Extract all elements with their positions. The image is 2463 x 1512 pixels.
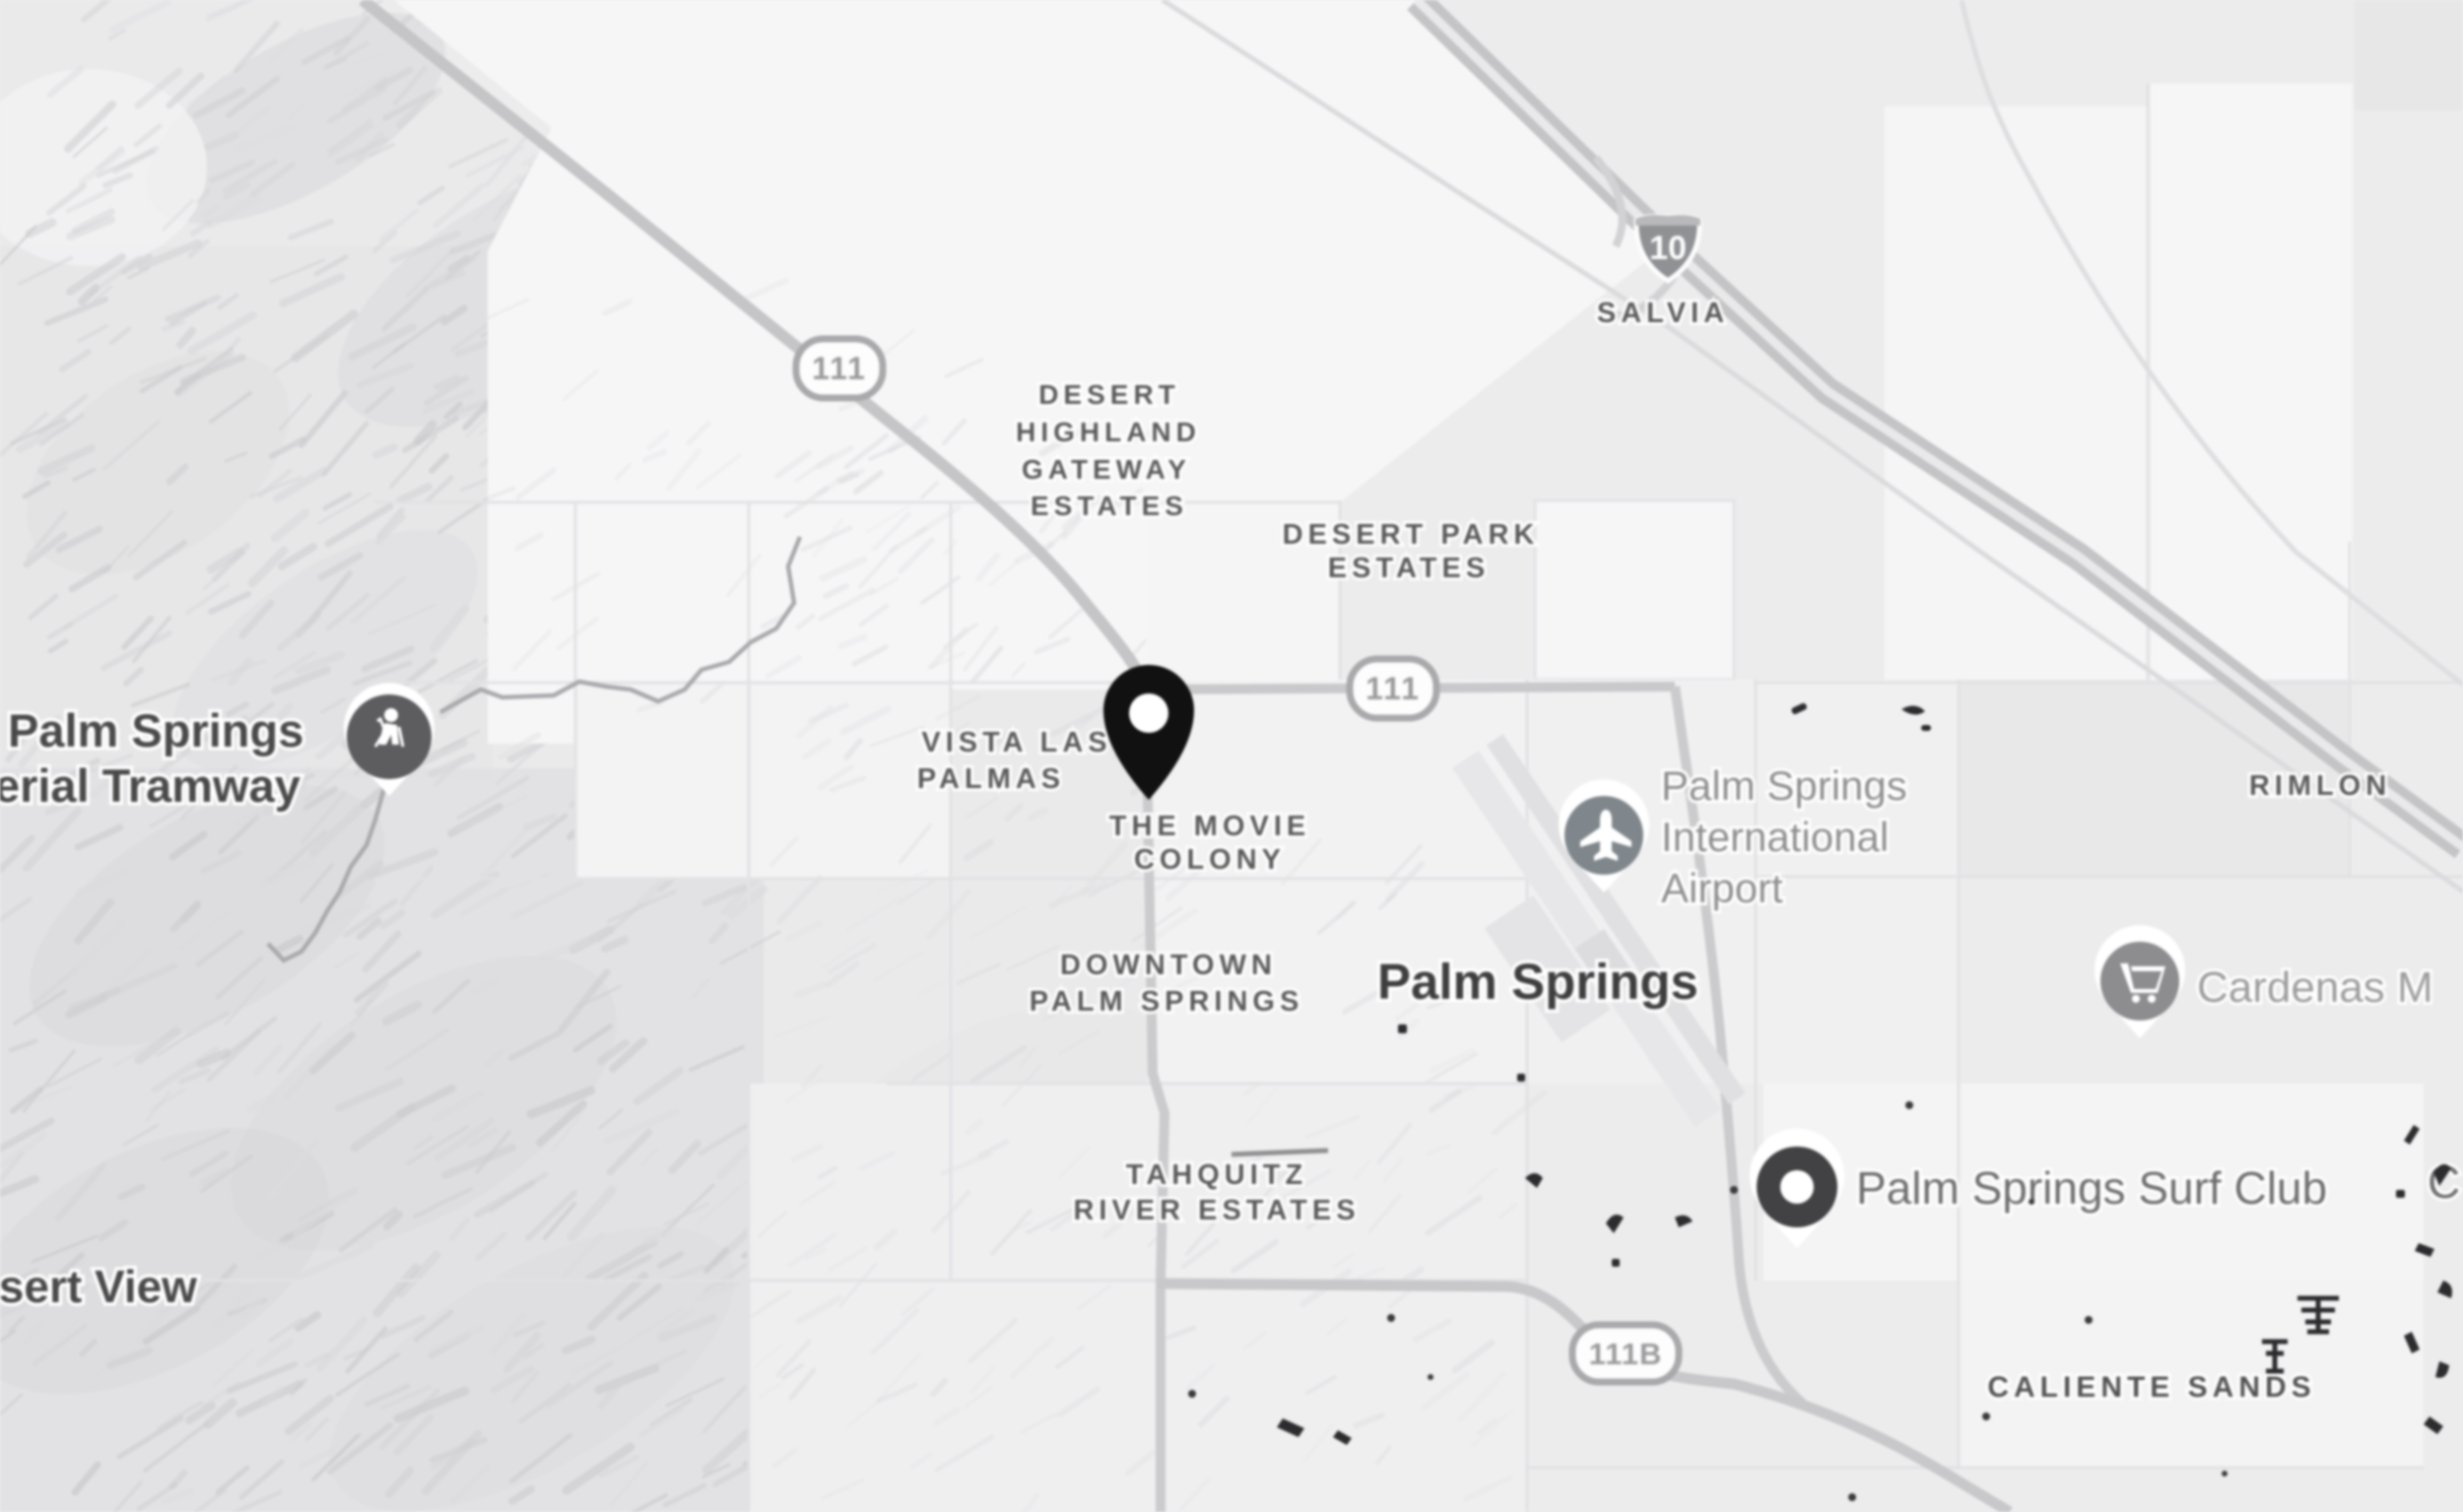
svg-text:111: 111 <box>812 351 867 386</box>
svg-text:RIVER ESTATES: RIVER ESTATES <box>1073 1195 1360 1226</box>
svg-text:CALIENTE SANDS: CALIENTE SANDS <box>1987 1371 2315 1404</box>
svg-text:Airport: Airport <box>1661 865 1783 911</box>
svg-text:Aerial Tramway: Aerial Tramway <box>0 759 300 812</box>
svg-text:COLONY: COLONY <box>1134 844 1286 876</box>
svg-text:Palm Springs: Palm Springs <box>1377 953 1698 1010</box>
svg-text:ESTATES: ESTATES <box>1031 491 1188 521</box>
svg-text:DOWNTOWN: DOWNTOWN <box>1060 950 1277 981</box>
svg-text:DESERT: DESERT <box>1038 379 1180 410</box>
svg-text:111: 111 <box>1365 671 1421 706</box>
svg-text:C: C <box>2428 1156 2460 1208</box>
svg-text:Palm Springs: Palm Springs <box>8 704 303 756</box>
svg-text:111B: 111B <box>1589 1337 1663 1371</box>
svg-text:HIGHLAND: HIGHLAND <box>1016 417 1201 447</box>
svg-text:TAHQUITZ: TAHQUITZ <box>1126 1159 1307 1191</box>
svg-text:Cardenas M: Cardenas M <box>2197 963 2433 1012</box>
svg-text:PALMAS: PALMAS <box>917 763 1065 795</box>
svg-text:THE MOVIE: THE MOVIE <box>1109 811 1311 842</box>
svg-text:10: 10 <box>1649 230 1687 267</box>
svg-text:International: International <box>1661 814 1889 860</box>
svg-text:Palm Springs: Palm Springs <box>1661 762 1907 809</box>
svg-text:RIMLON: RIMLON <box>2249 770 2391 802</box>
svg-text:DESERT PARK: DESERT PARK <box>1283 519 1540 551</box>
svg-text:VISTA LAS: VISTA LAS <box>921 727 1111 758</box>
svg-text:SALVIA: SALVIA <box>1597 297 1729 329</box>
svg-text:GATEWAY: GATEWAY <box>1022 454 1191 485</box>
svg-text:Palm Springs Surf Club: Palm Springs Surf Club <box>1856 1162 2327 1214</box>
svg-text:PALM SPRINGS: PALM SPRINGS <box>1030 986 1304 1018</box>
svg-text:ESTATES: ESTATES <box>1328 553 1490 584</box>
svg-text:Desert View: Desert View <box>0 1261 197 1312</box>
